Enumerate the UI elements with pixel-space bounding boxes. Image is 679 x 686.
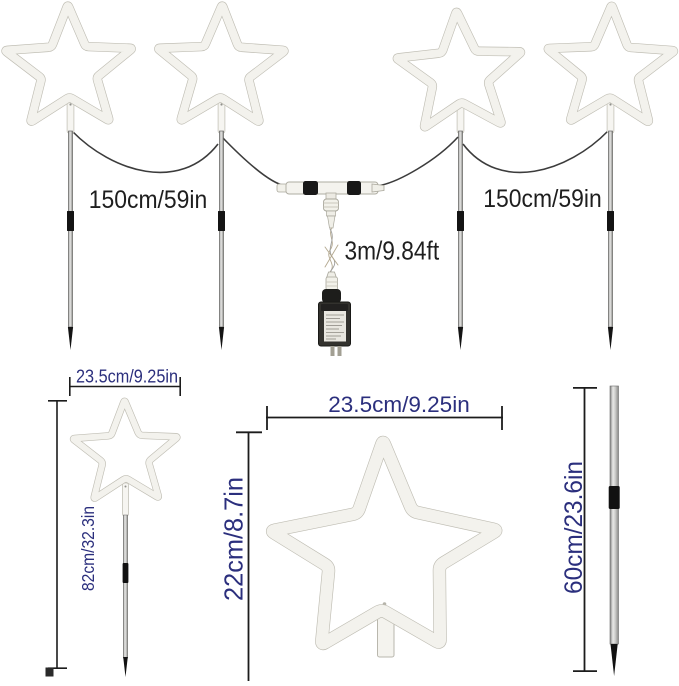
svg-text:3m/9.84ft: 3m/9.84ft bbox=[344, 238, 439, 266]
svg-text:23.5cm/9.25in: 23.5cm/9.25in bbox=[76, 366, 178, 387]
svg-text:82cm/32.3in: 82cm/32.3in bbox=[78, 506, 98, 591]
svg-text:22cm/8.7in: 22cm/8.7in bbox=[219, 477, 249, 601]
svg-text:150cm/59in: 150cm/59in bbox=[89, 186, 208, 214]
svg-text:60cm/23.6in: 60cm/23.6in bbox=[560, 461, 588, 594]
svg-text:23.5cm/9.25in: 23.5cm/9.25in bbox=[328, 392, 470, 417]
svg-text:150cm/59in: 150cm/59in bbox=[483, 185, 602, 213]
